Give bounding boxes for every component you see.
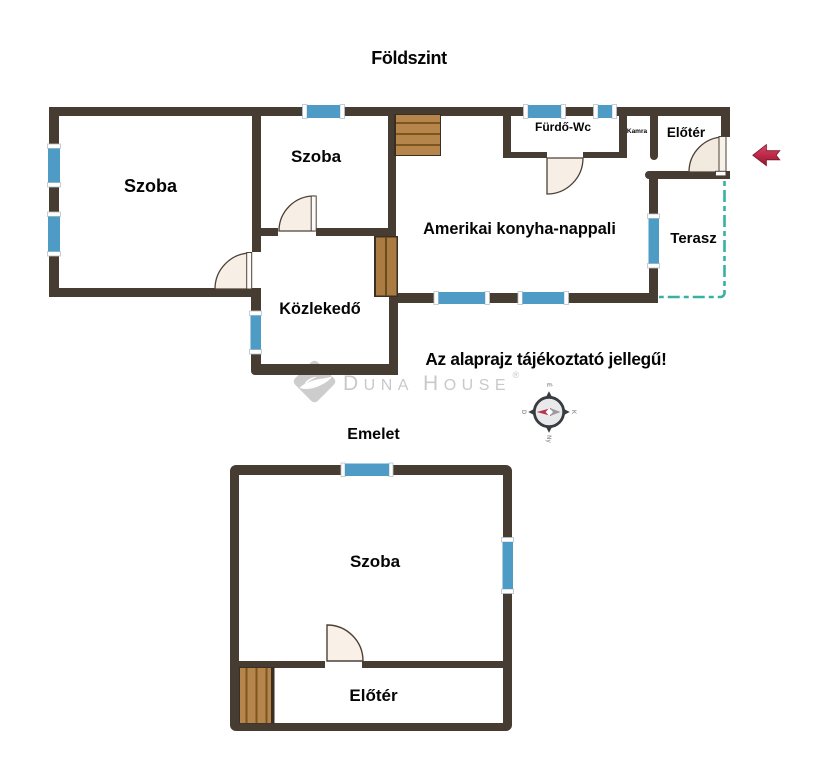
svg-text:Terasz: Terasz	[670, 230, 716, 247]
svg-text:DUNA HOUSE: DUNA HOUSE	[343, 372, 511, 395]
svg-text:É: É	[545, 383, 553, 387]
svg-text:Az alaprajz tájékoztató jelleg: Az alaprajz tájékoztató jellegű!	[425, 349, 666, 369]
svg-text:Előtér: Előtér	[667, 125, 706, 140]
svg-text:Szoba: Szoba	[350, 552, 401, 571]
svg-text:Amerikai konyha-nappali: Amerikai konyha-nappali	[423, 220, 616, 238]
svg-text:Fürdő-Wc: Fürdő-Wc	[535, 120, 591, 134]
svg-text:Szoba: Szoba	[124, 176, 178, 196]
svg-text:Közlekedő: Közlekedő	[279, 300, 360, 318]
svg-text:K: K	[570, 410, 576, 415]
svg-text:D: D	[520, 410, 526, 415]
svg-text:Kamra: Kamra	[627, 128, 648, 135]
svg-text:Emelet: Emelet	[347, 426, 400, 443]
svg-text:®: ®	[513, 370, 520, 380]
svg-text:Földszint: Földszint	[371, 48, 447, 68]
svg-text:Szoba: Szoba	[291, 147, 342, 166]
svg-text:Ny: Ny	[545, 435, 551, 443]
svg-text:Előtér: Előtér	[349, 686, 398, 705]
